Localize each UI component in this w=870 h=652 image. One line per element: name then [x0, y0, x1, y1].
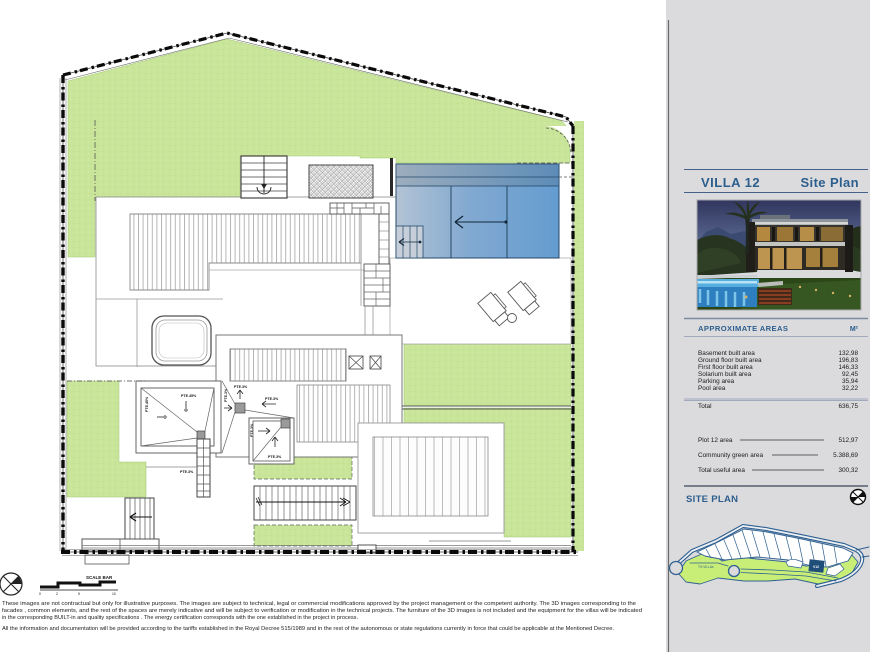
svg-text:PTE.45%: PTE.45% [145, 396, 149, 412]
svg-text:VILLA 12: VILLA 12 [701, 175, 760, 190]
svg-text:PTE.3%: PTE.3% [250, 423, 254, 437]
svg-text:PTE.3%: PTE.3% [234, 385, 248, 389]
svg-text:Basement built area: Basement built area [698, 350, 755, 357]
svg-text:APPROXIMATE AREAS: APPROXIMATE AREAS [698, 324, 788, 333]
svg-text:PTE.3%: PTE.3% [180, 470, 194, 474]
svg-text:First floor built area: First floor built area [698, 364, 753, 371]
svg-text:35,94: 35,94 [842, 378, 858, 385]
svg-text:facades , common elements, and: facades , common elements, and the rest … [2, 608, 642, 614]
svg-text:0: 0 [39, 592, 41, 596]
svg-text:Parking area: Parking area [698, 378, 735, 385]
svg-text:These images are not contra: These images are not contractual but onl… [2, 601, 636, 607]
svg-text:2: 2 [56, 592, 58, 596]
svg-text:636,75: 636,75 [838, 403, 858, 410]
svg-text:PTE.3%: PTE.3% [265, 397, 279, 401]
svg-text:10: 10 [112, 592, 116, 596]
svg-text:Total useful area: Total useful area [698, 467, 745, 474]
svg-text:Ground floor built area: Ground floor built area [698, 357, 762, 364]
svg-text:Solarium built area: Solarium built area [698, 371, 752, 378]
svg-text:132,98: 132,98 [838, 350, 858, 357]
svg-text:SITE PLAN: SITE PLAN [686, 494, 738, 505]
svg-text:Site Plan: Site Plan [800, 175, 859, 190]
svg-text:146,33: 146,33 [838, 364, 858, 371]
svg-text:PTE.45%: PTE.45% [181, 394, 197, 398]
svg-text:Total: Total [698, 403, 712, 410]
svg-text:196,83: 196,83 [838, 357, 858, 364]
svg-text:PTE.3%: PTE.3% [224, 388, 228, 402]
svg-text:300,32: 300,32 [838, 467, 858, 474]
svg-text:V12: V12 [813, 565, 819, 569]
svg-text:5: 5 [78, 592, 80, 596]
svg-text:in the corresponding BUILT-: in the corresponding BUILT-in and qualit… [2, 615, 358, 621]
svg-text:M²: M² [850, 326, 859, 333]
svg-text:Community green area: Community green area [698, 452, 763, 459]
svg-text:All the information and doc: All the information and documentation wi… [2, 626, 614, 632]
svg-text:Pool area: Pool area [698, 385, 726, 392]
svg-text:SCALE BAR: SCALE BAR [86, 575, 113, 580]
svg-text:512,97: 512,97 [838, 437, 858, 444]
svg-text:Plot 12 area: Plot 12 area [698, 437, 733, 444]
svg-text:TH-VILLAs: TH-VILLAs [698, 565, 714, 569]
svg-text:92,45: 92,45 [842, 371, 858, 378]
svg-text:5.388,69: 5.388,69 [833, 452, 858, 459]
svg-text:PTE.3%: PTE.3% [268, 455, 282, 459]
svg-text:32,22: 32,22 [842, 385, 858, 392]
